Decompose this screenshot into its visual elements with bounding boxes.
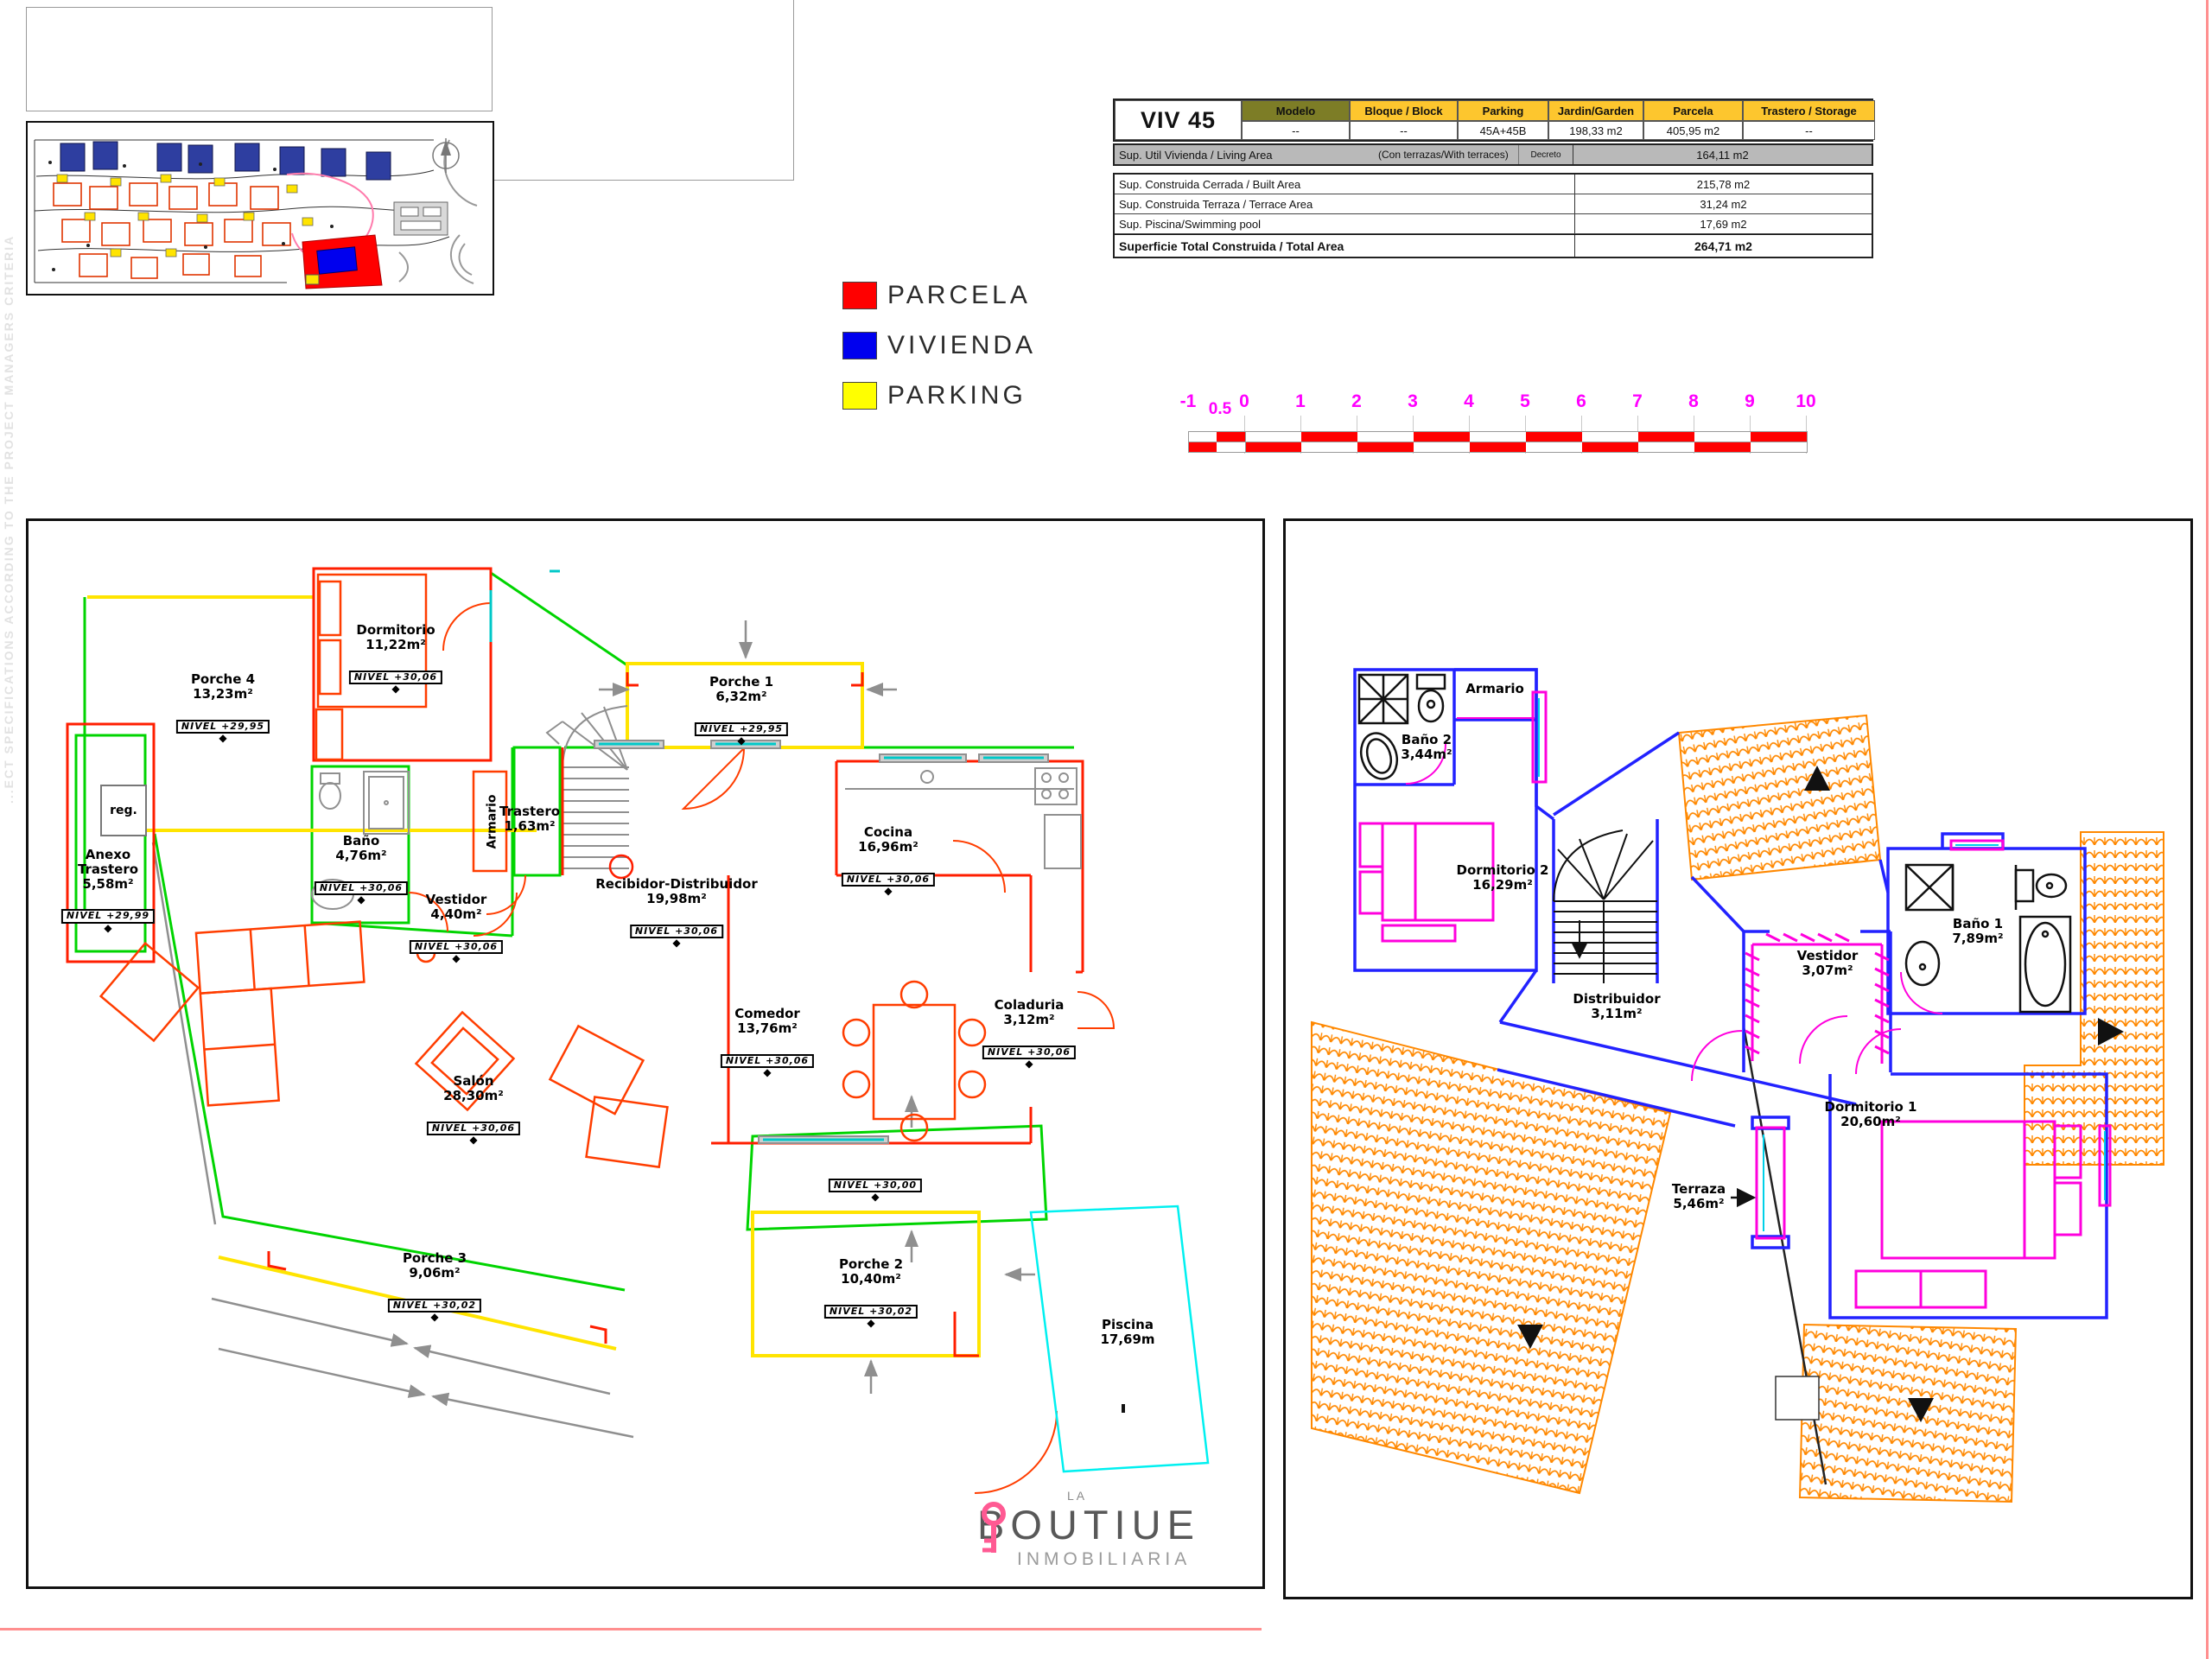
scale-tick-label: 6 xyxy=(1576,391,1586,412)
room-area: 3,11m² xyxy=(1573,1007,1660,1021)
room-name: Dormitorio 1 xyxy=(1825,1100,1917,1115)
scale-tick-label: 9 xyxy=(1745,391,1755,412)
armario-vertical-label: Armario xyxy=(486,794,499,849)
stairs-upper xyxy=(1554,830,1657,983)
room-label-vestidor: Vestidor 4,40m² NIVEL +30,06 ◆ xyxy=(410,893,503,962)
room-label-vestidor-upper: Vestidor 3,07m² xyxy=(1797,949,1859,978)
room-label-porche-2: Porche 2 10,40m² NIVEL +30,02 ◆ xyxy=(824,1257,918,1326)
scale-tick-label: 7 xyxy=(1632,391,1643,412)
room-area: 4,76m² xyxy=(315,849,408,863)
area-rows-table: Sup. Construida Cerrada / Built Area 215… xyxy=(1113,173,1873,258)
unit-header-table: VIV 45 Modelo Bloque / Block Parking Jar… xyxy=(1113,99,1873,142)
room-name: Terraza xyxy=(1672,1182,1726,1197)
room-label-anexo-trastero: Anexo Trastero 5,58m² NIVEL +29,99 ◆ xyxy=(61,848,155,931)
row-label: Sup. Construida Cerrada / Built Area xyxy=(1115,175,1575,194)
room-label-armario-upper: Armario xyxy=(1465,682,1524,696)
construction-box xyxy=(26,7,493,111)
room-area: 1,63m² xyxy=(499,819,560,834)
room-name: Baño xyxy=(315,834,408,849)
parking-swatch xyxy=(842,382,877,410)
row-label: Sup. Construida Terraza / Terrace Area xyxy=(1115,194,1575,213)
room-name: Dormitorio 2 xyxy=(1457,863,1549,878)
room-name: Dormitorio xyxy=(349,623,442,638)
nivel-diamond: ◆ xyxy=(982,1060,1076,1067)
room-label-porche-1: Porche 1 6,32m² NIVEL +29,95 ◆ xyxy=(695,675,788,744)
col-jardin: Jardin/Garden xyxy=(1548,100,1643,121)
unit-info-table: VIV 45 Modelo Bloque / Block Parking Jar… xyxy=(1113,99,1873,258)
logo-main: BOUTI UE xyxy=(977,1501,1200,1548)
room-area: 28,30m² xyxy=(427,1089,520,1103)
spec-sheet-page: { "watermark": "...ECT SPECIFICATIONS AC… xyxy=(0,0,2212,1659)
upper-floor-drawing xyxy=(1286,521,2190,1597)
scale-bar-left2 xyxy=(1188,442,1246,453)
room-area: 10,40m² xyxy=(824,1272,918,1287)
row-label: Sup. Piscina/Swimming pool xyxy=(1115,214,1575,233)
room-area: 13,76m² xyxy=(721,1021,814,1036)
room-label-recibidor: Recibidor-Distribuidor 19,98m² NIVEL +30… xyxy=(595,877,758,946)
scale-tick-label: 0.5 xyxy=(1209,400,1231,419)
room-label-porche-4: Porche 4 13,23m² NIVEL +29,95 ◆ xyxy=(176,672,270,741)
room-area: 16,29m² xyxy=(1457,878,1549,893)
road-and-gray-buildings xyxy=(394,140,477,283)
scale-tick-label: 5 xyxy=(1520,391,1530,412)
room-name: Cocina xyxy=(842,825,935,840)
room-label-bano: Baño 4,76m² NIVEL +30,06 ◆ xyxy=(315,834,408,903)
construction-box-2 xyxy=(494,0,794,181)
nivel-diamond: ◆ xyxy=(410,955,503,962)
stair-newel xyxy=(610,855,632,878)
legend-item-vivienda: VIVIENDA xyxy=(842,331,1067,360)
room-area: 3,44m² xyxy=(1401,747,1452,762)
room-name: Trastero xyxy=(499,804,560,819)
room-label-comedor: Comedor 13,76m² NIVEL +30,06 ◆ xyxy=(721,1007,814,1076)
room-area: 19,98m² xyxy=(595,892,758,906)
scale-tick-label: 2 xyxy=(1351,391,1362,412)
val-parcela: 405,95 m2 xyxy=(1643,121,1743,140)
room-name: Armario xyxy=(1465,682,1524,696)
val-trastero: -- xyxy=(1743,121,1875,140)
row-value: 215,78 m2 xyxy=(1575,175,1872,194)
room-area: 20,60m² xyxy=(1825,1115,1917,1129)
room-label-porche-3: Porche 3 9,06m² NIVEL +30,02 ◆ xyxy=(388,1251,481,1320)
room-name: Porche 3 xyxy=(388,1251,481,1266)
house-outlines xyxy=(54,183,290,278)
table-row: Sup. Construida Terraza / Terrace Area 3… xyxy=(1115,194,1872,214)
room-label-salon: Salón 28,30m² NIVEL +30,06 ◆ xyxy=(427,1074,520,1143)
scale-tick-label: 10 xyxy=(1796,391,1815,412)
col-parking: Parking xyxy=(1458,100,1548,121)
nivel-diamond: ◆ xyxy=(315,896,408,903)
highlight-parcela xyxy=(302,235,382,289)
room-area: 7,89m² xyxy=(1952,931,2003,946)
room-name: Vestidor xyxy=(410,893,503,907)
roof-opening xyxy=(1776,1376,1819,1420)
room-name: Comedor xyxy=(721,1007,814,1021)
row-value: 264,71 m2 xyxy=(1575,235,1872,257)
room-area: 3,07m² xyxy=(1797,963,1859,978)
watermark-text: ...ECT SPECIFICATIONS ACCORDING TO THE P… xyxy=(2,285,16,804)
room-area: 5,46m² xyxy=(1672,1197,1726,1211)
vivienda-blocks xyxy=(60,142,391,180)
room-area: 9,06m² xyxy=(388,1266,481,1281)
col-trastero: Trastero / Storage xyxy=(1743,100,1875,121)
room-label-coladuria: Coladuria 3,12m² NIVEL +30,06 ◆ xyxy=(982,998,1076,1067)
nivel-diamond: ◆ xyxy=(176,734,270,741)
room-area: 4,40m² xyxy=(410,907,503,922)
scale-tick-label: 8 xyxy=(1688,391,1699,412)
vivienda-swatch xyxy=(842,332,877,359)
key-icon xyxy=(977,1501,1010,1556)
scale-tick-label: 0 xyxy=(1239,391,1249,412)
room-label-piscina: Piscina 17,69m ◆ xyxy=(1100,1318,1154,1363)
ground-floor-panel: Porche 4 13,23m² NIVEL +29,95 ◆ Dormitor… xyxy=(26,518,1265,1589)
room-name: Coladuria xyxy=(982,998,1076,1013)
room-area: 13,23m² xyxy=(176,687,270,702)
unit-id: VIV 45 xyxy=(1115,100,1242,140)
legend-item-parcela: PARCELA xyxy=(842,281,1067,310)
legend-label: VIVIENDA xyxy=(887,331,1036,360)
scale-bar: -1 0.5 0 1 2 3 4 5 6 7 8 9 10 xyxy=(1188,391,1808,456)
row-label: Superficie Total Construida / Total Area xyxy=(1115,235,1575,257)
col-modelo: Modelo xyxy=(1242,100,1350,121)
living-area-value: 164,11 m2 xyxy=(1573,145,1872,164)
scale-tick-label: -1 xyxy=(1180,391,1197,412)
room-area: 3,12m² xyxy=(982,1013,1076,1027)
nivel-diamond: ◆ xyxy=(829,1193,922,1200)
val-jardin: 198,33 m2 xyxy=(1548,121,1643,140)
table-row-total: Superficie Total Construida / Total Area… xyxy=(1115,234,1872,257)
scale-tick-label: 3 xyxy=(1408,391,1418,412)
room-label-trastero: Trastero 1,63m² ◆ xyxy=(499,804,560,849)
entry-nivel-label: NIVEL +30,00 ◆ xyxy=(829,1160,922,1201)
site-plan xyxy=(26,121,494,296)
room-name: Baño 1 xyxy=(1952,917,2003,931)
legend: PARCELA VIVIENDA PARKING xyxy=(842,281,1067,431)
nivel-diamond: ◆ xyxy=(61,925,155,931)
logo-sub: INMOBILIARIA xyxy=(1017,1549,1191,1570)
site-plan-drawing xyxy=(28,123,493,294)
row-value: 17,69 m2 xyxy=(1575,214,1872,233)
table-row: Sup. Piscina/Swimming pool 17,69 m2 xyxy=(1115,214,1872,234)
room-label-dormitorio-1: Dormitorio 1 20,60m² xyxy=(1825,1100,1917,1129)
room-area: 11,22m² xyxy=(349,638,442,652)
room-name: Anexo Trastero xyxy=(61,848,155,877)
room-name: Porche 4 xyxy=(176,672,270,687)
table-row: Sup. Construida Cerrada / Built Area 215… xyxy=(1115,175,1872,194)
col-bloque: Bloque / Block xyxy=(1350,100,1458,121)
scale-bar-row2 xyxy=(1244,442,1808,453)
scale-tick-label: 4 xyxy=(1464,391,1474,412)
scale-tick-label: 1 xyxy=(1295,391,1306,412)
living-area-decree: Decreto xyxy=(1518,145,1573,164)
room-area: 6,32m² xyxy=(695,690,788,704)
room-area: 17,69m xyxy=(1100,1332,1154,1347)
bottom-crop-line xyxy=(0,1628,1262,1630)
room-name: Porche 1 xyxy=(695,675,788,690)
nivel-diamond: ◆ xyxy=(595,939,758,946)
room-name: Salón xyxy=(427,1074,520,1089)
living-area-note: (Con terrazas/With terraces) xyxy=(1378,145,1518,164)
nivel-diamond: ◆ xyxy=(824,1319,918,1326)
nivel-diamond: ◆ xyxy=(695,737,788,744)
legend-item-parking: PARKING xyxy=(842,381,1067,410)
nivel-diamond: ◆ xyxy=(427,1136,520,1143)
row-value: 31,24 m2 xyxy=(1575,194,1872,213)
nivel-diamond: ◆ xyxy=(842,887,935,894)
nivel-diamond: ◆ xyxy=(349,685,442,692)
val-parking: 45A+45B xyxy=(1458,121,1548,140)
room-label-dormitorio-2: Dormitorio 2 16,29m² xyxy=(1457,863,1549,893)
right-crop-line xyxy=(2206,0,2209,1659)
nivel-diamond: ◆ xyxy=(388,1313,481,1320)
col-parcela: Parcela xyxy=(1643,100,1743,121)
reg-box: reg. xyxy=(100,785,147,836)
logo-main-right: UE xyxy=(1132,1501,1200,1548)
room-area: 16,96m² xyxy=(842,840,935,855)
room-name: Vestidor xyxy=(1797,949,1859,963)
room-label-bano-2: Baño 2 3,44m² xyxy=(1401,733,1452,762)
living-area-label: Sup. Util Vivienda / Living Area xyxy=(1115,145,1378,164)
roof-tile-areas xyxy=(1312,715,2164,1502)
legend-label: PARCELA xyxy=(887,281,1031,310)
room-name: Porche 2 xyxy=(824,1257,918,1272)
room-name: Distribuidor xyxy=(1573,992,1660,1007)
val-bloque: -- xyxy=(1350,121,1458,140)
agency-logo: LA BOUTI UE INMOBILIARIA xyxy=(977,1491,1262,1584)
room-label-dormitorio: Dormitorio 11,22m² NIVEL +30,06 ◆ xyxy=(349,623,442,692)
val-modelo: -- xyxy=(1242,121,1350,140)
parcela-swatch xyxy=(842,282,877,309)
room-label-cocina: Cocina 16,96m² NIVEL +30,06 ◆ xyxy=(842,825,935,894)
room-name: Baño 2 xyxy=(1401,733,1452,747)
nivel-diamond: ◆ xyxy=(721,1069,814,1076)
compass-icon xyxy=(433,138,459,173)
room-label-bano-1: Baño 1 7,89m² xyxy=(1952,917,2003,946)
legend-label: PARKING xyxy=(887,381,1027,410)
room-area: 5,58m² xyxy=(61,877,155,892)
living-area-row: Sup. Util Vivienda / Living Area (Con te… xyxy=(1113,143,1873,166)
room-label-terraza: Terraza 5,46m² xyxy=(1672,1182,1726,1211)
room-name: Recibidor-Distribuidor xyxy=(595,877,758,892)
room-name: Piscina xyxy=(1100,1318,1154,1332)
upper-floor-panel: Baño 2 3,44m² Armario Dormitorio 2 16,29… xyxy=(1283,518,2193,1599)
reg-label: reg. xyxy=(110,804,137,817)
room-label-distribuidor: Distribuidor 3,11m² xyxy=(1573,992,1660,1021)
